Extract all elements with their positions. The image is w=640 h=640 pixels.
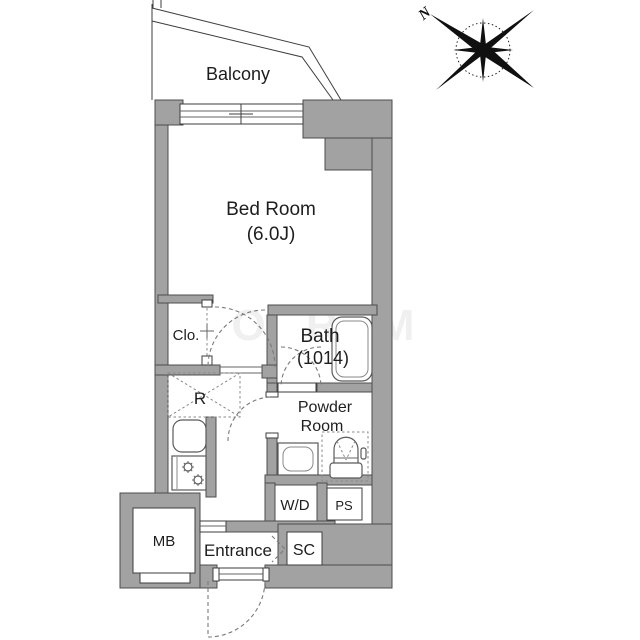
refrigerator-label: R: [194, 389, 206, 408]
meter-box-strip: [140, 573, 190, 583]
wall-top-left: [155, 100, 183, 125]
washer-dryer-label: W/D: [280, 497, 309, 514]
washbasin: [278, 443, 318, 475]
compass-rose: N: [415, 4, 534, 90]
wall-top-right-block: [303, 100, 392, 138]
bath-size-label: (1014): [297, 348, 349, 368]
bath-label: Bath: [300, 326, 339, 347]
closet-label: Clo.: [173, 327, 200, 344]
bedroom-size-label: (6.0J): [247, 224, 296, 245]
meter-box-label: MB: [153, 533, 176, 550]
balcony-label: Balcony: [206, 64, 270, 84]
shoe-closet-label: SC: [293, 542, 315, 559]
bedroom-label: Bed Room: [226, 199, 316, 220]
entrance-step: [200, 521, 226, 532]
entrance-door: [208, 568, 269, 637]
wall-kitchen: [206, 417, 216, 497]
closet-door: [200, 300, 214, 365]
floor-plan-svg: O R M Balcony: [0, 0, 640, 640]
wall-bath-top: [268, 305, 377, 315]
toilet: [322, 432, 368, 481]
wall-right: [372, 138, 392, 580]
compass-north-label: N: [415, 4, 435, 25]
wall-bottom-right-of-door: [265, 565, 392, 588]
wall-bath-bottom: [317, 383, 372, 392]
kitchen-stove: [172, 456, 206, 490]
wall-bath-left: [267, 315, 277, 394]
wall-bath-bottom-left: [267, 383, 277, 392]
pipe-space-label: PS: [335, 498, 353, 513]
kitchen-sink: [173, 420, 206, 452]
entrance-label: Entrance: [204, 541, 272, 560]
balcony-railing: [152, 0, 341, 100]
floor-plan-page: O R M Balcony: [0, 0, 640, 640]
sliding-window: [180, 104, 303, 124]
powder-room-label-1: Powder: [298, 399, 353, 416]
